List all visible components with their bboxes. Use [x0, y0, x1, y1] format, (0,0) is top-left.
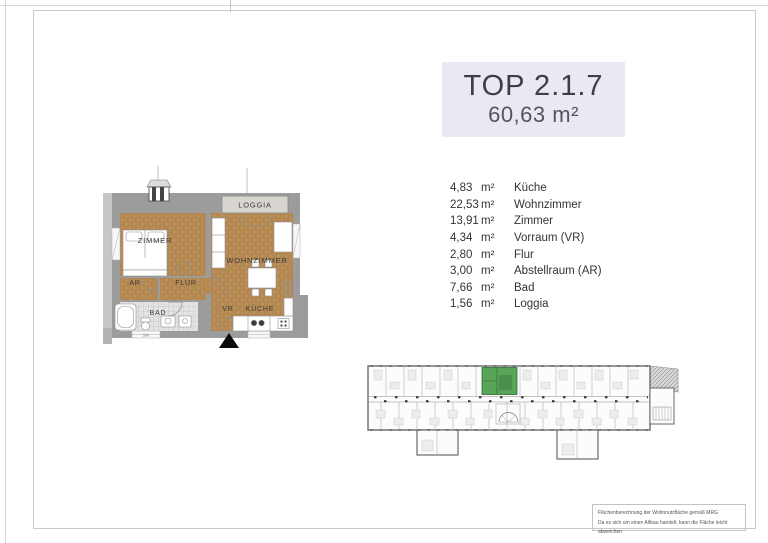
- fine-print-line2: Da es sich um einen Altbau handelt, kann…: [598, 519, 740, 538]
- room-area: 3,00: [450, 263, 481, 280]
- fine-print-line1: Flächenberechnung der Wohnnutzfläche gem…: [598, 509, 740, 519]
- room-area: 2,80: [450, 246, 481, 263]
- room-name: Abstellraum (AR): [514, 263, 602, 280]
- room-row: 13,91m²Zimmer: [450, 213, 602, 230]
- room-row: 22,53m²Wohnzimmer: [450, 197, 602, 214]
- room-row: 4,83m²Küche: [450, 180, 602, 197]
- room-unit: m²: [481, 296, 514, 313]
- room-name: Küche: [514, 180, 602, 197]
- apartment-floorplan: LOGGIA ZIMMER WOHNZIMMER AR FLUR BAD VR …: [98, 166, 320, 354]
- label-loggia: LOGGIA: [238, 201, 272, 210]
- sink-basin: [251, 320, 257, 326]
- building-overview: [360, 352, 732, 470]
- chair: [265, 289, 272, 296]
- room-unit: m²: [481, 263, 514, 280]
- room-unit: m²: [481, 246, 514, 263]
- outer-top-rule: [0, 5, 768, 6]
- room-row: 1,56m²Loggia: [450, 296, 602, 313]
- chimney-icon: [147, 180, 171, 201]
- room-unit: m²: [481, 197, 514, 214]
- room-row: 7,66m²Bad: [450, 280, 602, 297]
- stove: [278, 319, 289, 329]
- room-name: Wohnzimmer: [514, 197, 602, 214]
- room-row: 2,80m²Flur: [450, 246, 602, 263]
- room-name: Bad: [514, 280, 602, 297]
- room-unit: m²: [481, 280, 514, 297]
- room-row: 3,00m²Abstellraum (AR): [450, 263, 602, 280]
- kitchen-side-counter: [284, 298, 293, 316]
- label-ar: AR: [129, 280, 140, 287]
- room-unit: m²: [481, 213, 514, 230]
- plan-sheet: TOP 2.1.7 60,63 m² 4,83m²Küche 22,53m²Wo…: [0, 0, 768, 543]
- flur-door-gap: [206, 278, 211, 294]
- ar-flur-divider-wall: [158, 278, 160, 300]
- room-name: Flur: [514, 246, 602, 263]
- label-vr: VR: [222, 306, 233, 313]
- room-name: Zimmer: [514, 213, 602, 230]
- room-area: 22,53: [450, 197, 481, 214]
- room-row: 4,34m²Vorraum (VR): [450, 230, 602, 247]
- room-area: 13,91: [450, 213, 481, 230]
- washbasin: [161, 316, 175, 327]
- label-wohnzimmer: WOHNZIMMER: [226, 256, 287, 265]
- dimension-label: 500: [143, 333, 150, 338]
- adjacent-structure-corner: [103, 328, 112, 344]
- bed-bench: [123, 270, 167, 276]
- fine-print-box: Flächenberechnung der Wohnnutzfläche gem…: [592, 504, 746, 531]
- wall-pillar-right: [295, 295, 308, 338]
- outer-left-rule: [5, 0, 6, 543]
- highlighted-unit: [482, 368, 517, 395]
- dining-table: [248, 268, 276, 288]
- sideboard: [274, 222, 292, 252]
- bathtub: [115, 304, 136, 330]
- label-zimmer: ZIMMER: [138, 236, 172, 245]
- survey-lines: [158, 166, 247, 197]
- title-block: TOP 2.1.7 60,63 m²: [442, 62, 625, 137]
- room-area: 4,34: [450, 230, 481, 247]
- room-name: Vorraum (VR): [514, 230, 602, 247]
- room-area: 4,83: [450, 180, 481, 197]
- fridge: [284, 280, 293, 296]
- total-area: 60,63 m²: [488, 102, 579, 128]
- room-area: 1,56: [450, 296, 481, 313]
- room-unit: m²: [481, 180, 514, 197]
- label-flur: FLUR: [175, 280, 196, 287]
- toilet: [141, 318, 150, 322]
- sofa: [212, 218, 225, 268]
- label-bad: BAD: [150, 310, 167, 317]
- sink-basin: [259, 320, 265, 326]
- adjacent-structure: [103, 193, 112, 343]
- chair: [252, 289, 259, 296]
- room-area-list: 4,83m²Küche 22,53m²Wohnzimmer 13,91m²Zim…: [450, 180, 602, 313]
- room-name: Loggia: [514, 296, 602, 313]
- room-unit: m²: [481, 230, 514, 247]
- apartment-title: TOP 2.1.7: [463, 71, 603, 103]
- room-area: 7,66: [450, 280, 481, 297]
- washbasin: [179, 316, 191, 327]
- label-kueche: KÜCHE: [246, 305, 275, 313]
